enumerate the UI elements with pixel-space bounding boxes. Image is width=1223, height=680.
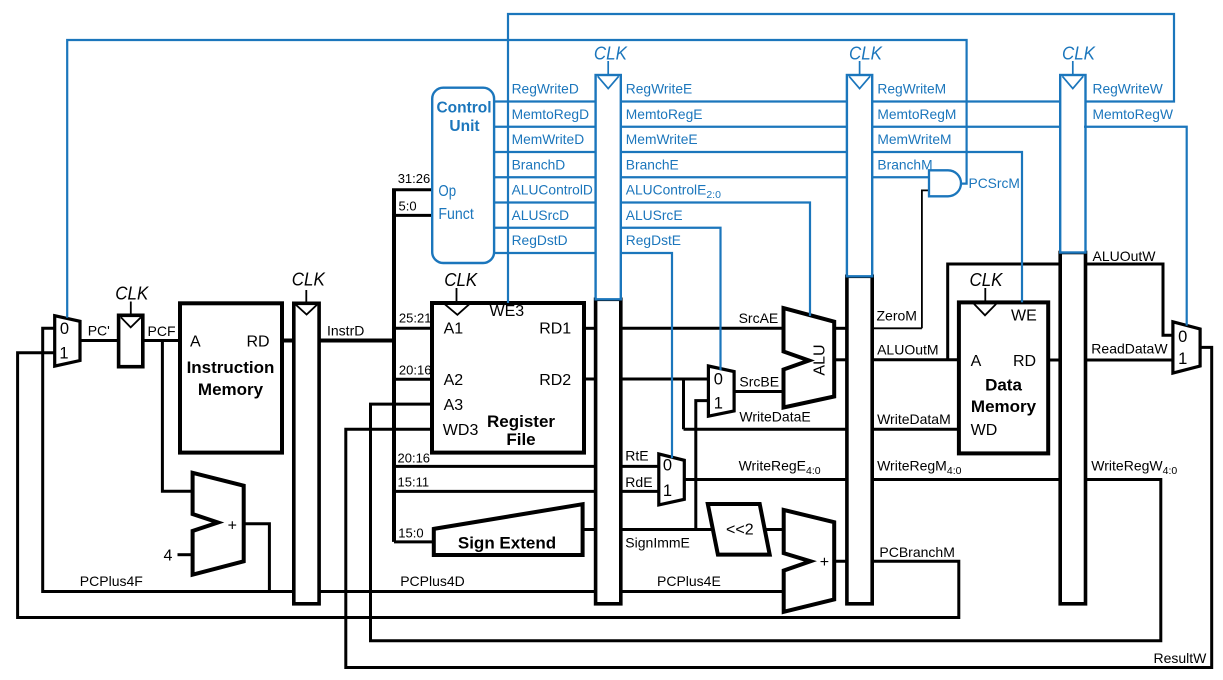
svg-text:Sign Extend: Sign Extend (458, 534, 556, 553)
svg-text:RD: RD (247, 334, 270, 351)
svg-text:ZeroM: ZeroM (877, 308, 917, 324)
svg-text:A: A (190, 334, 201, 351)
svg-text:RegWriteD: RegWriteD (512, 82, 579, 97)
svg-text:MemtoRegW: MemtoRegW (1093, 107, 1174, 122)
svg-text:SrcBE: SrcBE (739, 373, 779, 389)
svg-text:PCSrcM: PCSrcM (969, 176, 1020, 191)
svg-text:BranchM: BranchM (877, 157, 932, 172)
svg-text:20:16: 20:16 (399, 362, 432, 377)
svg-text:A: A (971, 353, 982, 370)
svg-text:ALUOutM: ALUOutM (877, 342, 938, 358)
svg-text:CLK: CLK (292, 270, 326, 290)
svg-text:RD1: RD1 (539, 320, 571, 337)
svg-text:File: File (506, 430, 535, 449)
svg-text:ALUControlD: ALUControlD (512, 183, 593, 198)
svg-text:PCPlus4D: PCPlus4D (400, 573, 465, 589)
svg-text:WriteRegE4:0: WriteRegE4:0 (739, 458, 821, 478)
svg-text:BranchE: BranchE (626, 157, 679, 172)
svg-text:CLK: CLK (594, 44, 628, 64)
svg-text:<<2: <<2 (726, 522, 754, 539)
svg-text:4: 4 (164, 548, 173, 565)
svg-text:31:26: 31:26 (398, 171, 431, 186)
svg-text:RegWriteW: RegWriteW (1093, 82, 1163, 97)
svg-text:15:11: 15:11 (398, 475, 430, 490)
svg-text:Funct: Funct (438, 206, 474, 223)
svg-text:ReadDataW: ReadDataW (1091, 341, 1168, 357)
svg-text:Data: Data (985, 376, 1022, 395)
svg-text:PCPlus4E: PCPlus4E (657, 573, 721, 589)
svg-text:A3: A3 (444, 397, 464, 414)
svg-text:MemWriteD: MemWriteD (512, 132, 585, 147)
svg-text:PCF: PCF (148, 323, 176, 339)
svg-text:RD: RD (1013, 353, 1036, 370)
svg-text:0: 0 (714, 370, 723, 388)
svg-text:CLK: CLK (1062, 44, 1096, 64)
svg-text:MemWriteM: MemWriteM (877, 132, 951, 147)
svg-text:MemtoRegE: MemtoRegE (626, 107, 703, 122)
svg-text:Memory: Memory (971, 397, 1037, 416)
svg-text:PC': PC' (88, 322, 110, 338)
svg-text:MemtoRegD: MemtoRegD (512, 107, 589, 122)
svg-text:CLK: CLK (970, 270, 1004, 290)
svg-text:WD3: WD3 (443, 422, 479, 439)
svg-text:Memory: Memory (198, 380, 264, 399)
svg-text:RegWriteE: RegWriteE (626, 82, 692, 97)
svg-text:ResultW: ResultW (1154, 650, 1208, 666)
svg-text:A2: A2 (444, 372, 464, 389)
svg-text:1: 1 (663, 482, 672, 500)
svg-text:InstrD: InstrD (327, 323, 364, 339)
svg-text:ALUControlE2:0: ALUControlE2:0 (626, 183, 721, 202)
svg-text:CLK: CLK (849, 44, 883, 64)
svg-text:1: 1 (59, 345, 68, 363)
svg-text:0: 0 (1178, 328, 1187, 346)
svg-text:RegDstD: RegDstD (512, 233, 568, 248)
svg-text:BranchD: BranchD (512, 157, 566, 172)
svg-text:Instruction: Instruction (187, 358, 275, 377)
svg-text:WD: WD (971, 422, 998, 439)
svg-text:SrcAE: SrcAE (739, 310, 779, 326)
svg-text:+: + (820, 554, 829, 571)
svg-text:Op: Op (438, 183, 456, 200)
svg-text:ALU: ALU (812, 344, 829, 375)
svg-text:WriteRegM4:0: WriteRegM4:0 (877, 458, 962, 478)
svg-text:ALUSrcE: ALUSrcE (626, 208, 683, 223)
svg-text:RegWriteM: RegWriteM (877, 82, 946, 97)
svg-text:RtE: RtE (625, 448, 648, 464)
svg-text:5:0: 5:0 (399, 198, 417, 213)
svg-text:PCPlus4F: PCPlus4F (80, 573, 143, 589)
svg-text:Control: Control (436, 99, 491, 116)
svg-text:1: 1 (1178, 350, 1187, 368)
svg-text:ALUOutW: ALUOutW (1093, 248, 1157, 264)
svg-text:CLK: CLK (115, 283, 149, 303)
svg-text:RD2: RD2 (539, 372, 571, 389)
svg-text:Register: Register (487, 412, 555, 431)
svg-text:+: + (228, 518, 237, 535)
svg-text:0: 0 (60, 320, 69, 338)
svg-text:1: 1 (714, 395, 723, 413)
svg-text:RegDstE: RegDstE (626, 233, 681, 248)
svg-text:SignImmE: SignImmE (625, 535, 690, 551)
svg-text:A1: A1 (444, 320, 464, 337)
svg-text:WriteRegW4:0: WriteRegW4:0 (1091, 458, 1177, 478)
svg-text:0: 0 (663, 456, 672, 474)
svg-text:WE: WE (1011, 308, 1037, 325)
svg-text:WE3: WE3 (490, 303, 525, 320)
svg-text:MemtoRegM: MemtoRegM (877, 107, 956, 122)
svg-text:PCBranchM: PCBranchM (879, 544, 954, 560)
svg-text:RdE: RdE (625, 474, 652, 490)
svg-text:20:16: 20:16 (398, 450, 431, 465)
svg-text:Unit: Unit (449, 118, 479, 135)
svg-text:ALUSrcD: ALUSrcD (512, 208, 570, 223)
svg-text:WriteDataE: WriteDataE (739, 409, 810, 425)
svg-text:15:0: 15:0 (398, 525, 423, 540)
svg-text:25:21: 25:21 (399, 310, 432, 325)
svg-text:WriteDataM: WriteDataM (877, 411, 951, 427)
svg-text:CLK: CLK (444, 270, 478, 290)
svg-text:MemWriteE: MemWriteE (626, 132, 698, 147)
